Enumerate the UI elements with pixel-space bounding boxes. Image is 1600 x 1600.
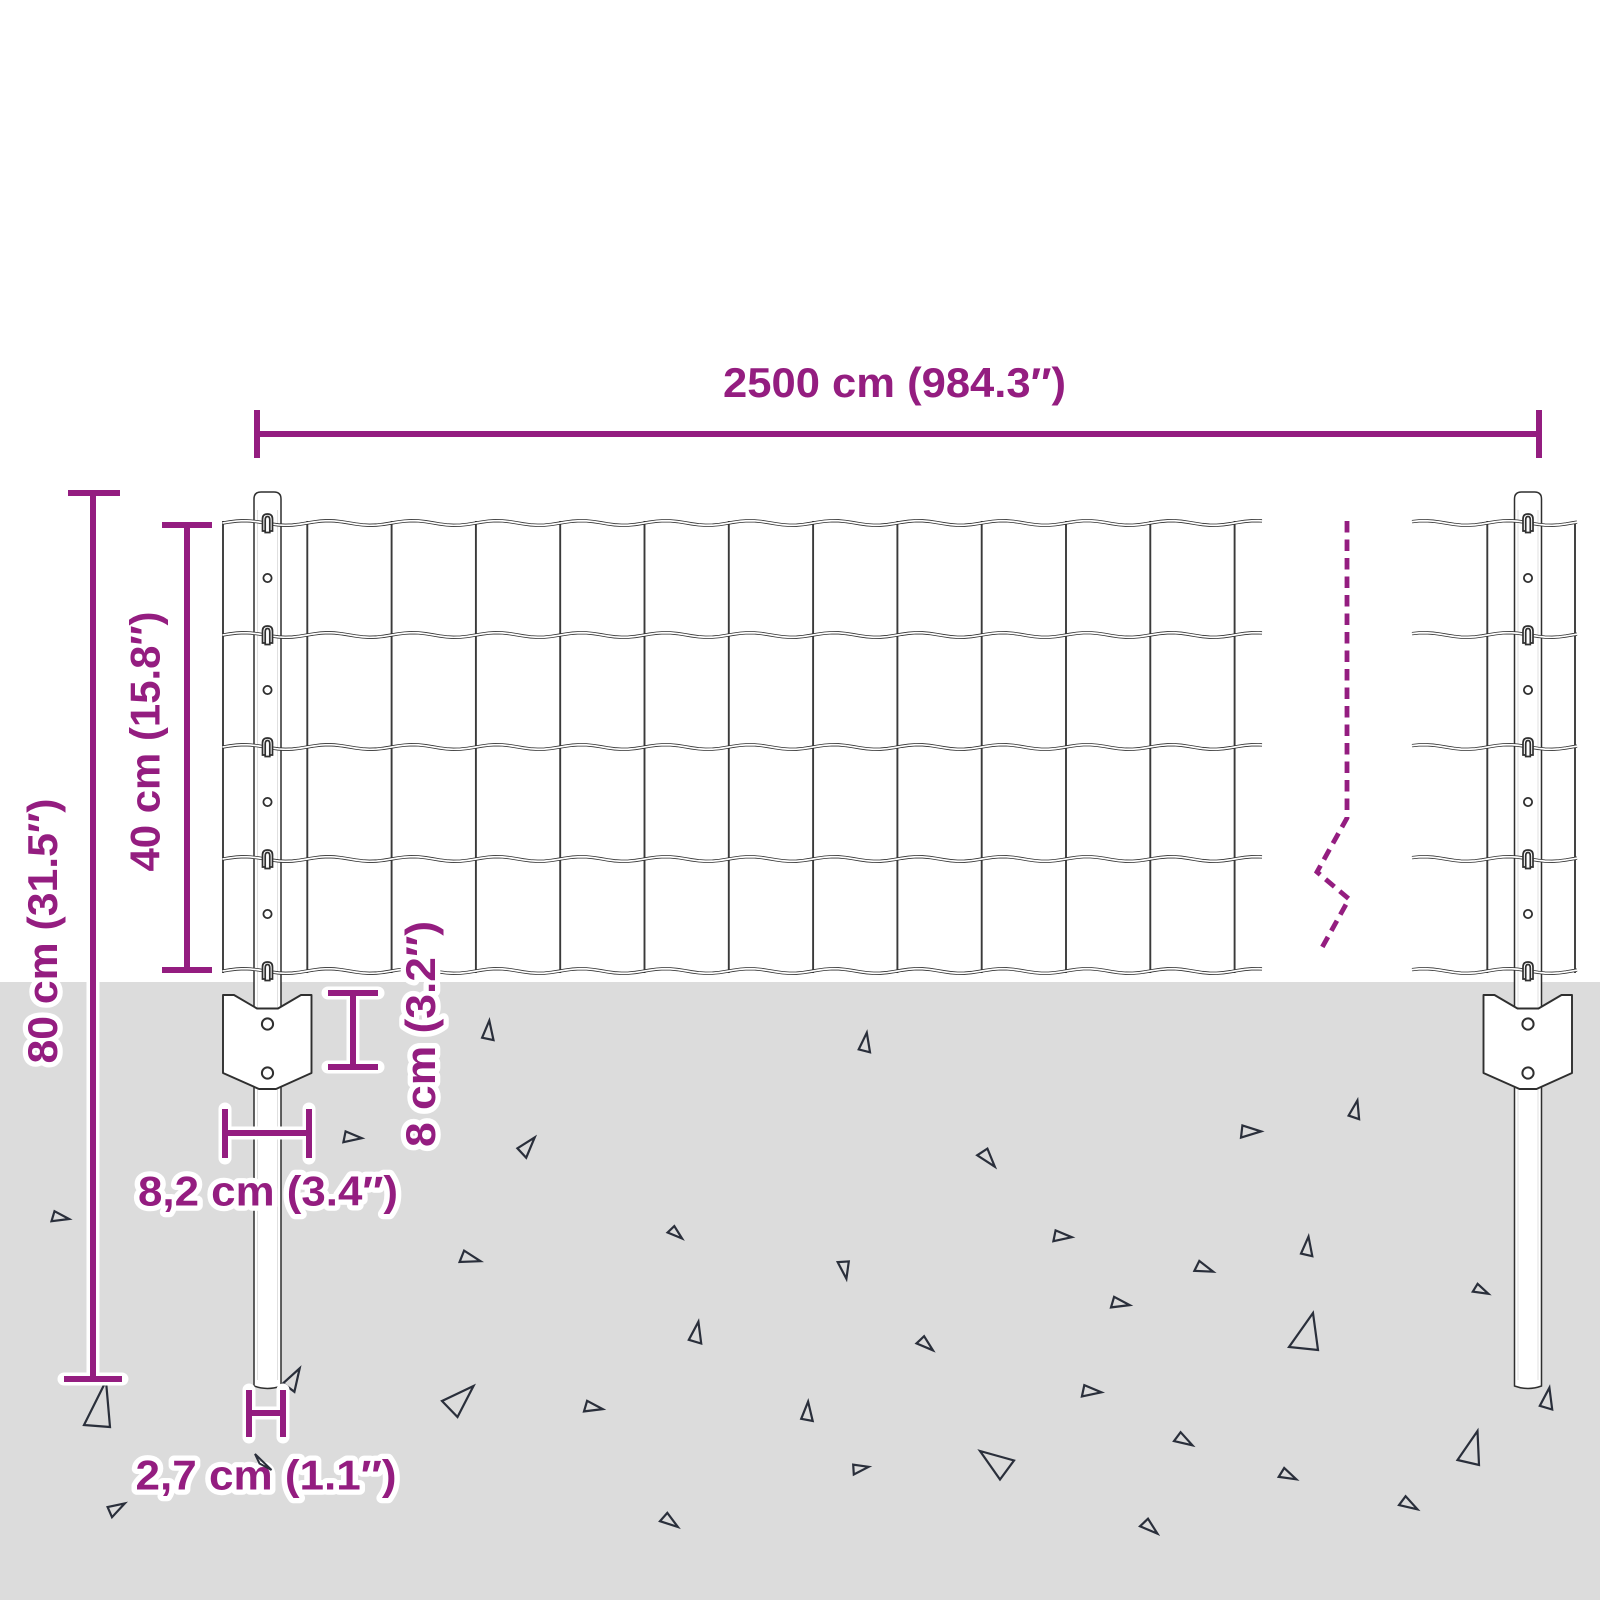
svg-text:8 cm (3.2″): 8 cm (3.2″) xyxy=(397,921,444,1147)
svg-text:80 cm (31.5″): 80 cm (31.5″) xyxy=(19,799,66,1064)
svg-text:2500 cm (984.3″): 2500 cm (984.3″) xyxy=(723,359,1066,406)
svg-text:8,2 cm (3.4″): 8,2 cm (3.4″) xyxy=(138,1168,398,1215)
svg-text:2,7 cm (1.1″): 2,7 cm (1.1″) xyxy=(136,1452,397,1499)
svg-text:40 cm (15.8″): 40 cm (15.8″) xyxy=(122,612,169,872)
